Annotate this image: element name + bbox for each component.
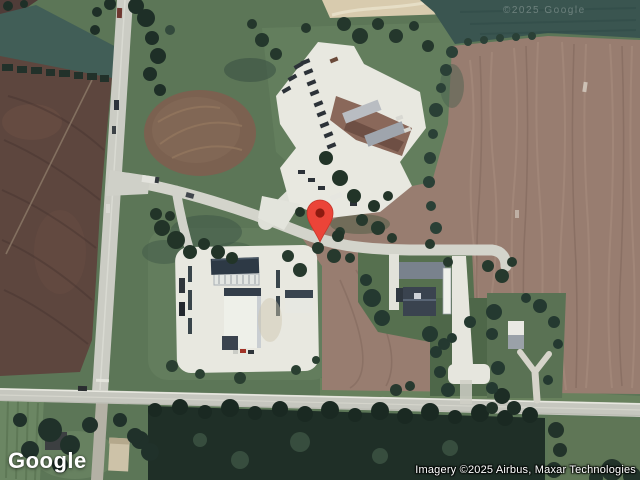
- imagery-watermark: ©2025 Google: [503, 5, 586, 16]
- pin-inner-dot: [315, 208, 324, 217]
- imagery-attribution: Imagery ©2025 Airbus, Maxar Technologies: [415, 464, 636, 476]
- google-logo[interactable]: Google: [8, 448, 87, 474]
- map-viewport[interactable]: ©2025 Google Google Imagery ©2025 Airbus…: [0, 0, 640, 480]
- satellite-canvas[interactable]: [0, 0, 640, 480]
